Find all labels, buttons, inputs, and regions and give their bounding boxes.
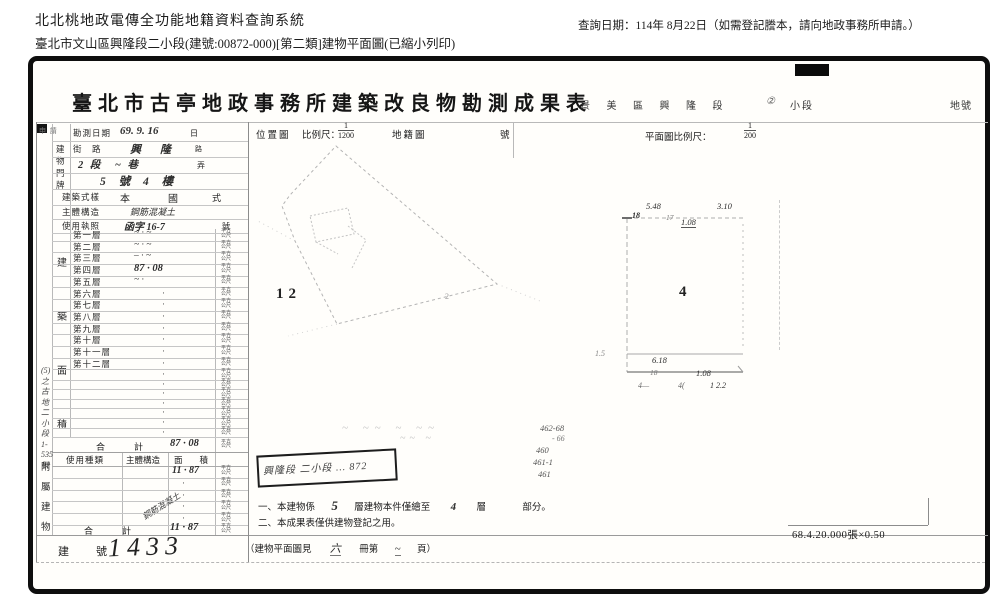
lot-number-note: 461	[538, 469, 551, 479]
street-label: 街 路	[73, 143, 102, 155]
page-ref-text: 冊第	[359, 545, 378, 555]
query-date: 查詢日期：114年 8月22日（如需登記謄本，請向地政事務所申請。）	[578, 17, 920, 33]
plan-dim-left: 1.5	[595, 349, 605, 358]
page-ref-text: 頁）	[417, 545, 436, 555]
sketch-tiny-number: 2	[445, 292, 449, 301]
floor-unit: 平方公尺	[221, 359, 233, 368]
plan-right-dash	[779, 200, 780, 350]
floor-unit: 平方公尺	[221, 347, 233, 356]
annex-row-unit: 平方公尺	[221, 479, 233, 488]
section-stamp-text: 興隆段 二小段 … 872	[263, 457, 368, 477]
building-no-label: 建 號	[58, 543, 115, 559]
floorplan-scale-label: 平面圖比例尺：	[645, 129, 712, 143]
floor-dot: ·	[162, 346, 165, 356]
floor-label: 第四層	[73, 264, 102, 276]
row-plate: 5 號 4 樓	[52, 173, 248, 190]
total-unit: 平方公尺	[221, 441, 233, 450]
plan-dim-b3: 1.08	[696, 368, 711, 378]
footer-bracket-v	[928, 498, 929, 525]
annex-header-use: 使用種類	[66, 454, 104, 466]
note-1-floor-hw: 4	[451, 501, 457, 513]
row-dot: ·	[162, 369, 165, 379]
row-unit: 平方公尺	[221, 418, 233, 427]
floor-dot: ·	[162, 311, 165, 321]
row-dot: ·	[182, 490, 185, 500]
plan-dim-t4: 17	[666, 213, 674, 222]
floor-label: 第五層	[73, 276, 102, 288]
plan-dim-t1: 5.48	[646, 201, 661, 211]
page-ref-text: （建物平面圖見	[245, 545, 312, 555]
style-value: 本 國	[120, 190, 192, 205]
plate-value: 5 號 4 樓	[100, 173, 178, 189]
floor-unit: 平方公尺	[221, 335, 233, 344]
lot-number-note: 462-68	[540, 423, 564, 433]
lot-number-note: 461-1	[533, 457, 553, 467]
floor-value: – · ~	[134, 251, 151, 261]
floor-label: 第十二層	[73, 358, 111, 370]
row-style: 建築式樣 本 國 式	[52, 189, 248, 206]
doc-district-lot: 地號	[950, 97, 972, 112]
floor-label: 第二層	[73, 241, 102, 253]
note-1-text: 層	[477, 503, 487, 513]
street-unit: 路	[195, 144, 202, 154]
floor-dot: ·	[162, 358, 165, 368]
fraction-numerator: 1	[338, 121, 354, 131]
plan-dim-t3: 18	[632, 211, 640, 220]
floor-label: 第七層	[73, 299, 102, 311]
system-title: 北北桃地政電傳全功能地籍資料查詢系統	[35, 10, 305, 30]
line-dashed-bottom	[36, 562, 985, 563]
floor-dot: ·	[162, 299, 165, 309]
page-ref-hw: 六	[330, 543, 341, 556]
line-content-top	[36, 122, 988, 123]
floor-label: 第十層	[73, 334, 102, 346]
row-unit: 平方公尺	[221, 428, 233, 437]
annex-row-unit: 平方公尺	[221, 502, 233, 511]
plan-dim-b1: 6.18	[652, 355, 667, 365]
lot-number-note: 460	[536, 445, 549, 455]
annex-header: 使用種類 主體構造 面 積	[52, 453, 248, 467]
note-1-text: 部分。	[522, 503, 551, 513]
floor-unit: 平方公尺	[221, 312, 233, 321]
plan-dim-t2: 3.10	[717, 201, 732, 211]
row-section: 2 段 ~ 巷 弄	[52, 157, 248, 174]
building-no-value: 1433	[107, 531, 184, 564]
floor-unit: 平方公尺	[221, 289, 233, 298]
row-dot: ·	[162, 388, 165, 398]
document-subtitle: 臺北市文山區興隆段二小段(建號:00872-000)[第二類]建物平面圖(已縮小…	[35, 33, 455, 52]
row-dot: ·	[162, 398, 165, 408]
street-value: 興 隆	[130, 141, 175, 157]
annex-total-unit: 平方公尺	[221, 525, 233, 534]
survey-date-unit: 日	[190, 128, 198, 139]
floor-label: 第一層	[73, 229, 102, 241]
section-value: 2 段 ~ 巷	[78, 157, 140, 172]
floor-row-12: 第十二層 · 平方公尺	[52, 358, 248, 371]
annex-row-value: 11 · 87	[172, 465, 199, 476]
doc-district: 景 美 區 興 隆 段	[580, 97, 730, 112]
floor-label: 第九層	[73, 323, 102, 335]
total-value: 87 · 08	[170, 438, 199, 449]
floor-unit: 平方公尺	[221, 230, 233, 239]
row-dot: ·	[162, 407, 165, 417]
lot-number-note: - 66	[552, 434, 565, 443]
row-dot: ·	[182, 478, 185, 488]
survey-date-label: 勘測日期	[73, 127, 111, 139]
floor-unit: 平方公尺	[221, 277, 233, 286]
note-1: 一、本建物係 5 層建物本件僅繪至 4 層 部分。	[258, 498, 551, 514]
location-sketch	[248, 136, 543, 341]
footer-bracket-h	[788, 525, 928, 526]
annex-header-structure: 主體構造	[126, 454, 160, 466]
section-unit: 弄	[197, 160, 205, 171]
floor-dot: ·	[162, 334, 165, 344]
plan-dim-b4: 4—	[638, 381, 649, 390]
doc-district-circle: ②	[766, 96, 775, 107]
floor-label: 第三層	[73, 252, 102, 264]
row-unit: 平方公尺	[221, 389, 233, 398]
floor-unit: 平方公尺	[221, 300, 233, 309]
note-2: 二、本成果表僅供建物登記之用。	[258, 515, 401, 529]
structure-label: 主體構造	[62, 206, 100, 218]
note-1-text: 層建物本件僅繪至	[354, 503, 430, 513]
pencil-marks-2: ~~ ~	[400, 433, 435, 444]
floor-dot: ·	[162, 288, 165, 298]
row-street: 街 路 興 隆 路	[52, 141, 248, 158]
row-dot: ·	[162, 427, 165, 437]
floor-unit: 平方公尺	[221, 324, 233, 333]
total-label: 合 計	[96, 440, 153, 453]
sketch-lot-number: 12	[276, 286, 301, 303]
floor-dot: ·	[162, 323, 165, 333]
plan-dim-t5: 1.08	[681, 217, 696, 228]
doc-title: 臺北市古亭地政事務所建築改良物勘測成果表	[72, 87, 592, 116]
floor-unit: 平方公尺	[221, 253, 233, 262]
row-dot: ·	[162, 417, 165, 427]
page-ref-hw: ~	[395, 543, 401, 556]
black-mark-top-right	[795, 64, 829, 76]
note-1-floors-hw: 5	[331, 498, 338, 513]
fraction-denominator: 200	[744, 131, 756, 140]
fraction-numerator: 1	[744, 121, 756, 131]
floor-label: 第六層	[73, 288, 102, 300]
floor-label: 第八層	[73, 311, 102, 323]
style-label: 建築式樣	[62, 191, 100, 203]
style-unit: 式	[212, 191, 221, 204]
floor-value: 87 · 08	[134, 263, 163, 274]
row-survey-date: 勘測日期 69. 9. 16 日	[52, 125, 248, 142]
row-total: 合 計 87 · 08 平方公尺	[52, 438, 248, 452]
structure-value: 鋼筋混凝土	[130, 205, 175, 218]
doc-district-small: 小段	[790, 97, 814, 112]
row-dot: ·	[182, 501, 185, 511]
row-dot: ·	[162, 379, 165, 389]
plan-dim-b2: 18	[650, 368, 658, 377]
row-unit: 平方公尺	[221, 370, 233, 379]
plan-floor-number: 4	[679, 284, 687, 301]
floor-value: ~ ·	[134, 275, 144, 285]
plan-dim-b5: 4(	[678, 381, 685, 390]
floor-value: ~ · ~	[134, 228, 151, 238]
floor-label: 第十一層	[73, 346, 111, 358]
page-reference: （建物平面圖見 六 冊第 ~ 頁）	[245, 540, 436, 556]
form-left-border	[36, 122, 37, 562]
floor-unit: 平方公尺	[221, 265, 233, 274]
floor-unit: 平方公尺	[221, 242, 233, 251]
note-1-text: 一、本建物係	[258, 503, 315, 513]
floor-value: ~ · ~	[134, 240, 151, 250]
survey-date-value: 69. 9. 16	[120, 125, 159, 137]
floorplan-scale-fraction: 1 200	[744, 121, 756, 140]
print-code: 68.4.20.000張×0.50	[792, 527, 885, 542]
plan-dim-b6: 1 2.2	[710, 381, 726, 390]
annex-row-unit: 平方公尺	[221, 491, 233, 500]
page: 北北桃地政電傳全功能地籍資料查詢系統 臺北市文山區興隆段二小段(建號:00872…	[0, 0, 1000, 595]
annex-row-unit: 平方公尺	[221, 467, 233, 476]
